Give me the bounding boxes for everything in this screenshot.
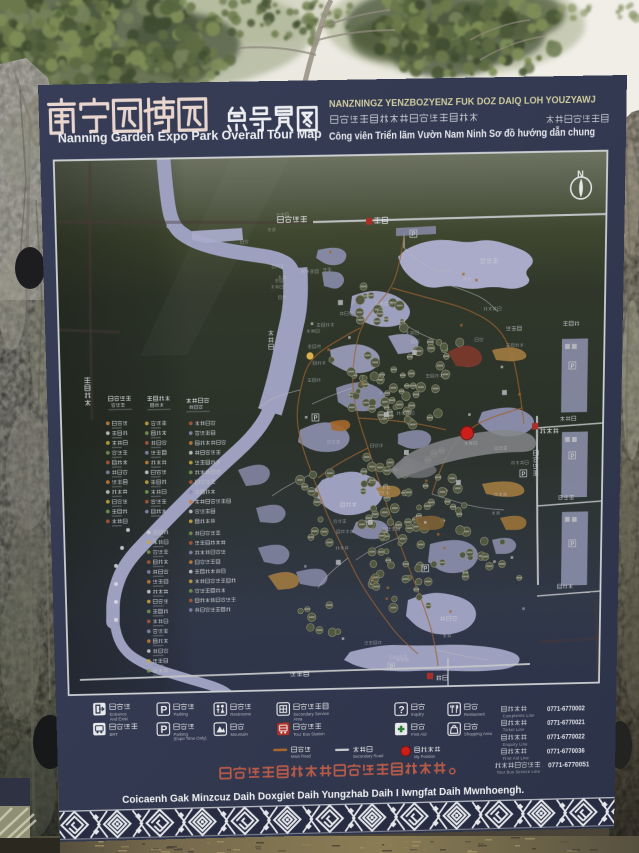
svg-text:0771-6770021: 0771-6770021 bbox=[547, 718, 585, 727]
svg-text:Ticket Line: Ticket Line bbox=[503, 727, 525, 732]
svg-text:P: P bbox=[570, 453, 574, 460]
svg-text:Restrooms: Restrooms bbox=[230, 712, 251, 717]
svg-text:P: P bbox=[570, 363, 574, 370]
svg-text:Parking: Parking bbox=[173, 712, 188, 717]
svg-text:My Position: My Position bbox=[414, 754, 435, 759]
svg-text:0771-6770002: 0771-6770002 bbox=[547, 704, 585, 713]
svg-text:And Exist: And Exist bbox=[110, 716, 129, 721]
svg-text:First Aid: First Aid bbox=[411, 732, 427, 737]
svg-text:N: N bbox=[577, 169, 584, 180]
svg-text:P: P bbox=[314, 415, 318, 422]
svg-text:BRT: BRT bbox=[109, 732, 118, 737]
svg-text:?: ? bbox=[398, 705, 404, 716]
svg-text:Enquiry Line: Enquiry Line bbox=[503, 742, 528, 747]
svg-text:0771-6770051: 0771-6770051 bbox=[548, 760, 590, 769]
svg-text:(Expo Time Only): (Expo Time Only) bbox=[173, 736, 206, 741]
svg-text:Mountain: Mountain bbox=[230, 732, 248, 737]
svg-text:Shopping Area: Shopping Area bbox=[464, 731, 492, 736]
svg-text:Restaurant: Restaurant bbox=[464, 712, 485, 717]
svg-text:P: P bbox=[521, 471, 525, 478]
svg-text:P: P bbox=[570, 541, 574, 548]
svg-text:P: P bbox=[423, 566, 427, 573]
svg-text:Secondary Road: Secondary Road bbox=[353, 754, 384, 759]
svg-text:0771-6770036: 0771-6770036 bbox=[547, 746, 585, 755]
svg-text:Complaints Line: Complaints Line bbox=[503, 713, 535, 718]
svg-text:P: P bbox=[160, 705, 168, 716]
svg-text:Inquiry: Inquiry bbox=[411, 712, 424, 717]
svg-text:P: P bbox=[160, 725, 168, 736]
svg-text:First Aid Line: First Aid Line bbox=[503, 756, 530, 761]
svg-text:P: P bbox=[412, 231, 416, 238]
svg-text:Main Road: Main Road bbox=[291, 754, 311, 759]
svg-text:Tour Bus Station: Tour Bus Station bbox=[293, 731, 325, 736]
svg-text:Area: Area bbox=[293, 716, 302, 721]
svg-text:P: P bbox=[389, 664, 393, 671]
svg-text:0771-6770022: 0771-6770022 bbox=[547, 732, 585, 741]
